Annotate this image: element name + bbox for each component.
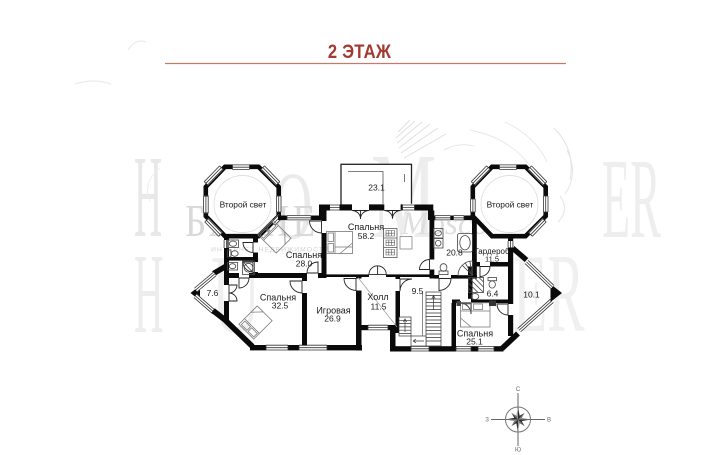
svg-text:6.4: 6.4 <box>487 289 499 299</box>
svg-text:Холл: Холл <box>367 292 388 302</box>
svg-text:2 ЭТАЖ: 2 ЭТАЖ <box>328 41 391 63</box>
svg-text:32.5: 32.5 <box>272 301 289 311</box>
svg-text:H: H <box>134 231 164 357</box>
svg-text:Второй свет: Второй свет <box>487 200 534 210</box>
svg-text:25.1: 25.1 <box>466 337 483 347</box>
svg-text:7.6: 7.6 <box>207 288 219 298</box>
svg-text:Ю: Ю <box>515 448 521 454</box>
svg-text:11.5: 11.5 <box>485 255 499 264</box>
svg-text:10.1: 10.1 <box>523 290 540 300</box>
svg-text:З: З <box>485 418 489 424</box>
svg-text:26.9: 26.9 <box>324 314 341 324</box>
svg-text:9.5: 9.5 <box>412 286 424 296</box>
svg-text:ER: ER <box>602 135 661 262</box>
svg-text:11.5: 11.5 <box>371 302 387 312</box>
svg-text:В: В <box>547 418 551 424</box>
svg-text:58.2: 58.2 <box>358 231 375 241</box>
svg-text:28.0: 28.0 <box>296 259 313 269</box>
svg-text:Второй свет: Второй свет <box>220 200 267 210</box>
svg-text:23.1: 23.1 <box>368 183 385 193</box>
svg-text:20.8: 20.8 <box>446 248 463 258</box>
svg-text:С: С <box>516 387 521 393</box>
